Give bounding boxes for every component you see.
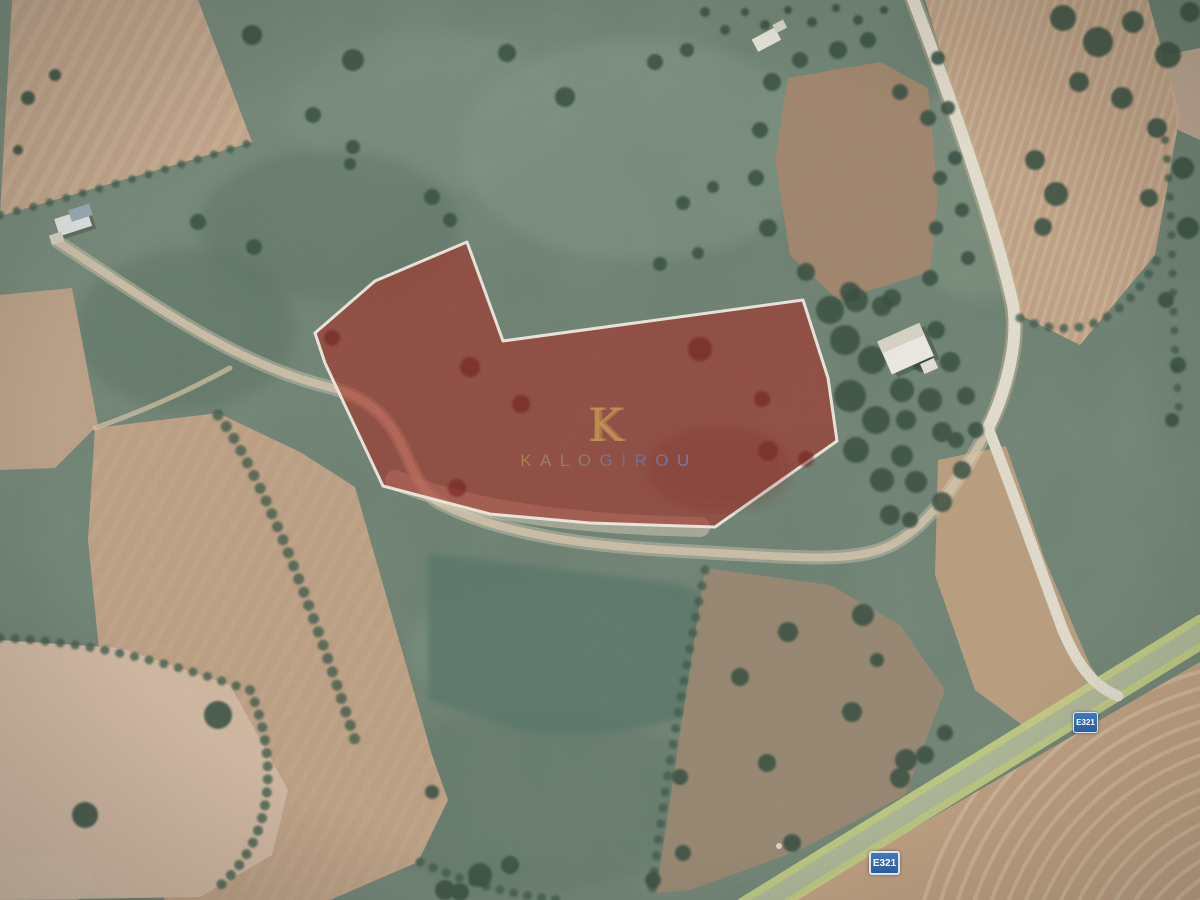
satellite-map-view: K KALOGIROU E321 E321 (0, 0, 1200, 900)
brand-logo-k: K (505, 402, 705, 448)
road-badge-e321-upper: E321 (1073, 712, 1098, 733)
road-badge-e321-lower: E321 (869, 851, 900, 875)
brand-watermark: K KALOGIROU (505, 402, 705, 471)
brand-name: KALOGIROU (505, 451, 705, 471)
